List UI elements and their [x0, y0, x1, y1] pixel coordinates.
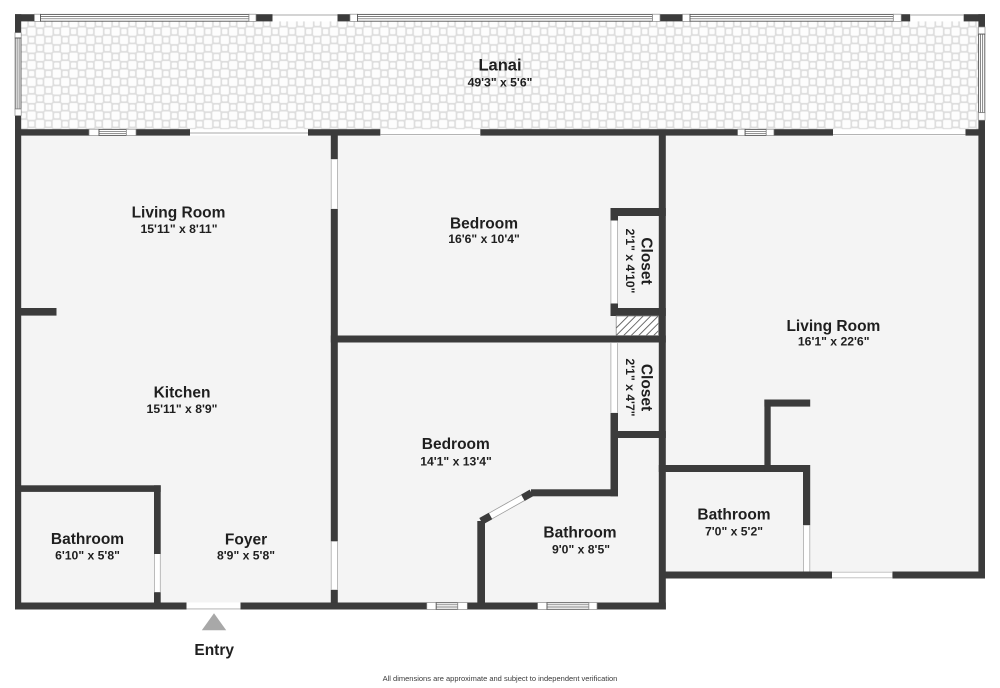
- svg-text:Bathroom: Bathroom: [543, 525, 616, 542]
- svg-text:Closet: Closet: [638, 237, 655, 284]
- svg-text:Entry: Entry: [194, 642, 234, 659]
- svg-text:2'1" x 4'7": 2'1" x 4'7": [623, 358, 637, 416]
- svg-text:Bedroom: Bedroom: [422, 436, 490, 453]
- svg-text:2'1" x 4'10": 2'1" x 4'10": [623, 229, 637, 294]
- svg-text:Bathroom: Bathroom: [51, 531, 124, 548]
- svg-text:15'11" x 8'11": 15'11" x 8'11": [140, 222, 217, 236]
- svg-text:8'9" x 5'8": 8'9" x 5'8": [217, 548, 275, 562]
- svg-text:Living Room: Living Room: [786, 318, 880, 335]
- svg-text:49'3" x 5'6": 49'3" x 5'6": [468, 75, 533, 89]
- svg-text:Closet: Closet: [638, 364, 655, 411]
- svg-text:Foyer: Foyer: [225, 532, 267, 549]
- svg-text:Bedroom: Bedroom: [450, 216, 518, 233]
- svg-text:Kitchen: Kitchen: [154, 385, 211, 402]
- svg-text:6'10" x 5'8": 6'10" x 5'8": [55, 549, 120, 563]
- svg-text:All dimensions are approximate: All dimensions are approximate and subje…: [383, 674, 618, 683]
- svg-text:Bathroom: Bathroom: [697, 507, 770, 524]
- svg-text:16'1" x 22'6": 16'1" x 22'6": [798, 334, 870, 348]
- svg-text:14'1" x 13'4": 14'1" x 13'4": [420, 454, 492, 468]
- svg-text:16'6" x 10'4": 16'6" x 10'4": [448, 232, 520, 246]
- svg-text:15'11" x 8'9": 15'11" x 8'9": [147, 402, 218, 416]
- svg-text:7'0" x 5'2": 7'0" x 5'2": [705, 525, 763, 539]
- svg-text:9'0" x 8'5": 9'0" x 8'5": [552, 542, 610, 556]
- svg-text:Living Room: Living Room: [132, 205, 226, 222]
- svg-text:Lanai: Lanai: [478, 57, 521, 75]
